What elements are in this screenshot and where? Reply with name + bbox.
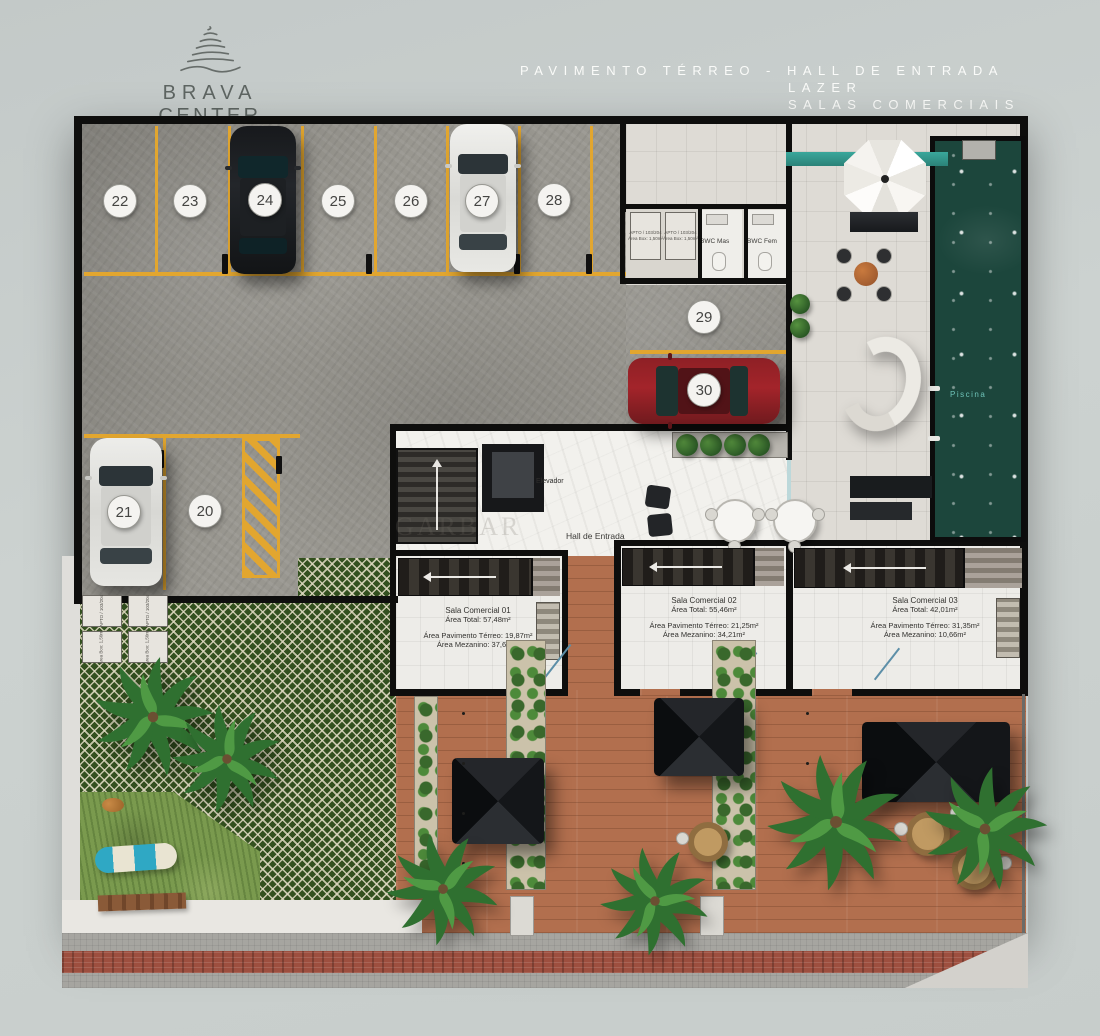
tactile-paving-strip (62, 951, 1028, 973)
sala2-entry-stone (754, 548, 784, 586)
floor-light (462, 762, 465, 765)
parking-line (84, 272, 626, 276)
wall-bwc-divider (698, 208, 702, 278)
wall-service-top (620, 204, 792, 209)
parking-spot-23: 23 (173, 184, 207, 218)
wheel-stop (222, 254, 228, 274)
sala1-area-total: Área Total: 57,48m² (400, 615, 556, 624)
door-gap-sala3 (812, 689, 852, 696)
dog (102, 798, 124, 812)
sala2-area-total: Área Total: 55,46m² (622, 605, 786, 614)
brand-mountain-icon (171, 22, 249, 78)
wall-garage-bottom (74, 596, 398, 603)
palm-tree (382, 828, 504, 950)
parking-spot-29: 29 (687, 300, 721, 334)
bench (850, 212, 918, 232)
plan-title: PAVIMENTO TÉRREO - HALL DE ENTRADA LAZER… (520, 62, 1020, 113)
chair (752, 508, 765, 521)
bwc-sink (752, 214, 774, 225)
wall-service-left (620, 204, 625, 284)
sala1-entry-arrow-icon (426, 576, 496, 578)
grass-paver-courtyard-upper (298, 558, 396, 600)
storage-box: APTO / 103/204 Área Box: 1,50m² (630, 212, 661, 260)
sala3-entry-stone (964, 548, 1022, 588)
palm-tree (596, 842, 714, 960)
parking-spot-26: 26 (394, 184, 428, 218)
plan-title-line1: PAVIMENTO TÉRREO - HALL DE ENTRADA (520, 62, 1020, 79)
bwc-toilet (758, 252, 772, 271)
sala1-area-terreo: Área Pavimento Térreo: 19,87m² (400, 631, 556, 640)
storage-box-label2: Área Box: 1,50m² (663, 236, 698, 242)
left-outer-strip (62, 556, 80, 936)
parking-spot-21: 21 (107, 495, 141, 529)
chair (876, 248, 892, 264)
wheel-stop (276, 456, 282, 474)
planter-bush (676, 434, 698, 456)
grill-counter (850, 476, 932, 498)
parking-line (518, 126, 521, 274)
planter-bush (724, 434, 746, 456)
sala3-entry-arrow-icon (846, 567, 926, 569)
storage-box-label1: APTO / 103/204 (99, 595, 105, 627)
parking-line (446, 126, 449, 274)
wall-sala1-right (562, 550, 568, 696)
chair (765, 508, 778, 521)
chair (836, 248, 852, 264)
sala1-entry-stone (532, 558, 560, 596)
bwc-toilet (712, 252, 726, 271)
sala2-info: Sala Comercial 02 Área Total: 55,46m² Ár… (622, 596, 786, 639)
elevator-label: Elevador (536, 478, 564, 486)
plant-pot (790, 294, 810, 314)
hall-label: Hall de Entrada (566, 532, 625, 542)
plaza-corridor (566, 556, 620, 696)
bwc-sink (706, 214, 728, 225)
palm-tree (762, 748, 910, 896)
parking-spot-24: 24 (248, 183, 282, 217)
parking-line (301, 126, 304, 274)
sala2-area-terreo: Área Pavimento Térreo: 21,25m² (622, 621, 786, 630)
parking-spot-30: 30 (687, 373, 721, 407)
floor-light (806, 712, 809, 715)
wall-perimeter-left (74, 116, 82, 604)
hall-round-table (713, 499, 757, 543)
wall-service-bottom (620, 278, 792, 284)
hall-round-table (773, 499, 817, 543)
door-gap-sala2 (640, 689, 680, 696)
parking-line (590, 126, 593, 274)
plant-pot (790, 318, 810, 338)
wheel-stop (586, 254, 592, 274)
pool (930, 136, 1026, 542)
sala3-name: Sala Comercial 03 (830, 596, 1020, 605)
planter-bush (700, 434, 722, 456)
chair (705, 508, 718, 521)
parking-line (155, 126, 158, 274)
sala1-name: Sala Comercial 01 (400, 606, 556, 615)
bwc-fem-label: BWC Fem (747, 238, 777, 245)
parking-line (630, 350, 786, 354)
sala3-area-mezanino: Área Mezanino: 10,66m² (830, 630, 1020, 639)
wall-sala2-sala3 (786, 540, 793, 696)
chair (836, 286, 852, 302)
bwc-mas-label: BWC Mas (700, 238, 729, 245)
parking-spot-27: 27 (465, 184, 499, 218)
wheel-stop (366, 254, 372, 274)
sala3-area-terreo: Área Pavimento Térreo: 31,35m² (830, 621, 1020, 630)
wall-sala1-top (390, 550, 568, 556)
palm-tree (918, 762, 1052, 896)
plan-title-line2: LAZER (520, 79, 1020, 96)
walkway-ramp (510, 896, 534, 936)
storage-box-label2: Área Box: 1,50m² (628, 236, 663, 242)
storage-box: APTO / 103/204 Área Box: 1,50m² (665, 212, 696, 260)
parking-spot-25: 25 (321, 184, 355, 218)
storage-box-label1: APTO / 103/204 (145, 595, 151, 627)
chair (876, 286, 892, 302)
parking-line (374, 126, 377, 274)
pool-ladder (928, 436, 940, 441)
lounge-chair (647, 513, 673, 537)
brand-name-line1: BRAVA (150, 82, 270, 105)
plan-title-line3: SALAS COMERCIAIS (520, 96, 1020, 113)
elevator-cab (492, 452, 534, 498)
sala2-name: Sala Comercial 02 (622, 596, 786, 605)
parking-spot-22: 22 (103, 184, 137, 218)
storage-box-left: APTO / 103/204 (128, 595, 168, 627)
wall-leisure-left-upper (786, 116, 792, 460)
wall-sala2-left (614, 540, 621, 696)
no-parking-hatch (242, 438, 280, 578)
wall-sala2-top (614, 540, 793, 546)
gazebo-pyramid (654, 698, 744, 776)
pool-ladder (928, 386, 940, 391)
wall-garage-service (620, 116, 626, 212)
floor-light (462, 812, 465, 815)
palm-tree (168, 700, 286, 818)
parking-spot-28: 28 (537, 183, 571, 217)
chair (812, 508, 825, 521)
watermark: GARBAR (395, 512, 521, 542)
planter-bush (748, 434, 770, 456)
round-table-wood (854, 262, 878, 286)
lounge-chair (645, 484, 672, 509)
wall-perimeter-top (74, 116, 1028, 124)
sala3-info: Sala Comercial 03 Área Total: 42,01m² Ár… (830, 596, 1020, 639)
grill-counter (850, 502, 912, 520)
sala2-entry-arrow-icon (652, 566, 722, 568)
sala3-area-total: Área Total: 42,01m² (830, 605, 1020, 614)
floor-plan-canvas: BRAVA CENTER Residence PAVIMENTO TÉRREO … (0, 0, 1100, 1036)
storage-box-left: APTO / 103/204 (82, 595, 122, 627)
parking-spot-20: 20 (188, 494, 222, 528)
wall-bwc-divider (744, 208, 748, 278)
pool-platform (962, 140, 996, 160)
wall-hall-top (390, 424, 792, 431)
pool-label: Piscina (950, 390, 986, 399)
pet-bench (98, 892, 187, 911)
sala2-area-mezanino: Área Mezanino: 34,21m² (622, 630, 786, 639)
floor-light (462, 712, 465, 715)
